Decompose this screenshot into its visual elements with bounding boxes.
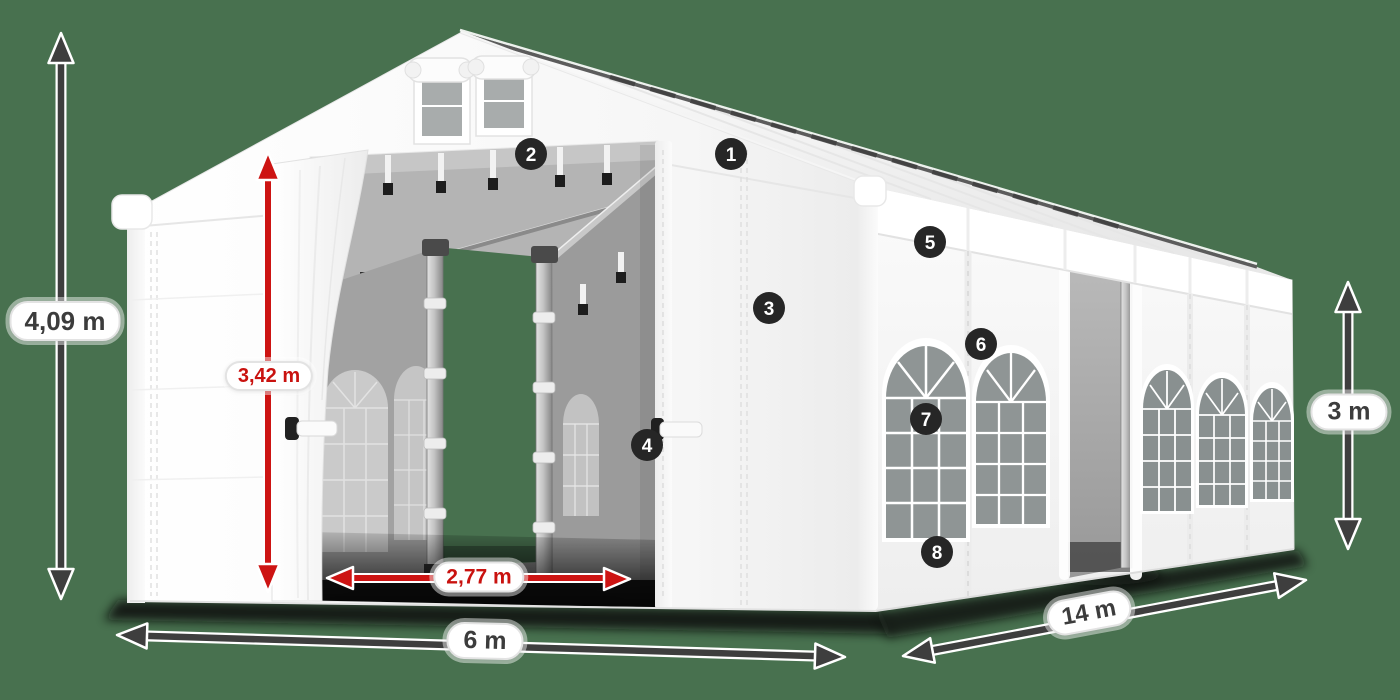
- wall-height-label: 3 m: [1310, 394, 1387, 431]
- side-window-2: [972, 345, 1050, 528]
- feature-badge-1: 1: [715, 138, 747, 170]
- interior: [310, 138, 662, 612]
- corner-sleeve-right: [858, 187, 878, 611]
- eave-cap-right: [854, 176, 886, 206]
- svg-text:7: 7: [921, 410, 932, 431]
- feature-badge-6: 6: [965, 328, 997, 360]
- door-handle: [297, 421, 337, 436]
- svg-text:4: 4: [642, 436, 653, 457]
- feature-badge-7: 7: [910, 403, 942, 435]
- side-window-1: [882, 338, 970, 542]
- pass-through-opening: [436, 247, 540, 566]
- door-width-label: 2,77 m: [433, 562, 524, 593]
- svg-text:1: 1: [726, 145, 737, 166]
- door-handle: [660, 422, 702, 437]
- svg-text:5: 5: [925, 233, 936, 254]
- feature-badge-4: 4: [631, 429, 663, 461]
- feature-badge-3: 3: [753, 292, 785, 324]
- gable-vent-left: [405, 58, 475, 144]
- tent-diagram: 1 2 3 4 5 6 7 8: [0, 0, 1400, 700]
- svg-text:2: 2: [526, 145, 537, 166]
- total-height-label: 4,09 m: [10, 301, 121, 341]
- eave-cap-left: [112, 195, 152, 229]
- corner-sleeve-left: [127, 213, 145, 603]
- feature-badge-2: 2: [515, 138, 547, 170]
- side-window-3: [1140, 364, 1194, 514]
- gable-vent-right: [468, 56, 539, 136]
- front-width-label: 6 m: [446, 621, 524, 660]
- side-window-5: [1250, 382, 1294, 502]
- feature-badge-8: 8: [921, 536, 953, 568]
- svg-text:6: 6: [976, 335, 987, 356]
- side-window-4: [1196, 372, 1248, 508]
- tent-illustration: 1 2 3 4 5 6 7 8: [0, 0, 1400, 700]
- side-middle-opening: [1059, 236, 1142, 580]
- svg-text:3: 3: [764, 299, 775, 320]
- inner-height-label: 3,42 m: [225, 361, 313, 391]
- svg-text:8: 8: [932, 543, 943, 564]
- feature-badge-5: 5: [914, 226, 946, 258]
